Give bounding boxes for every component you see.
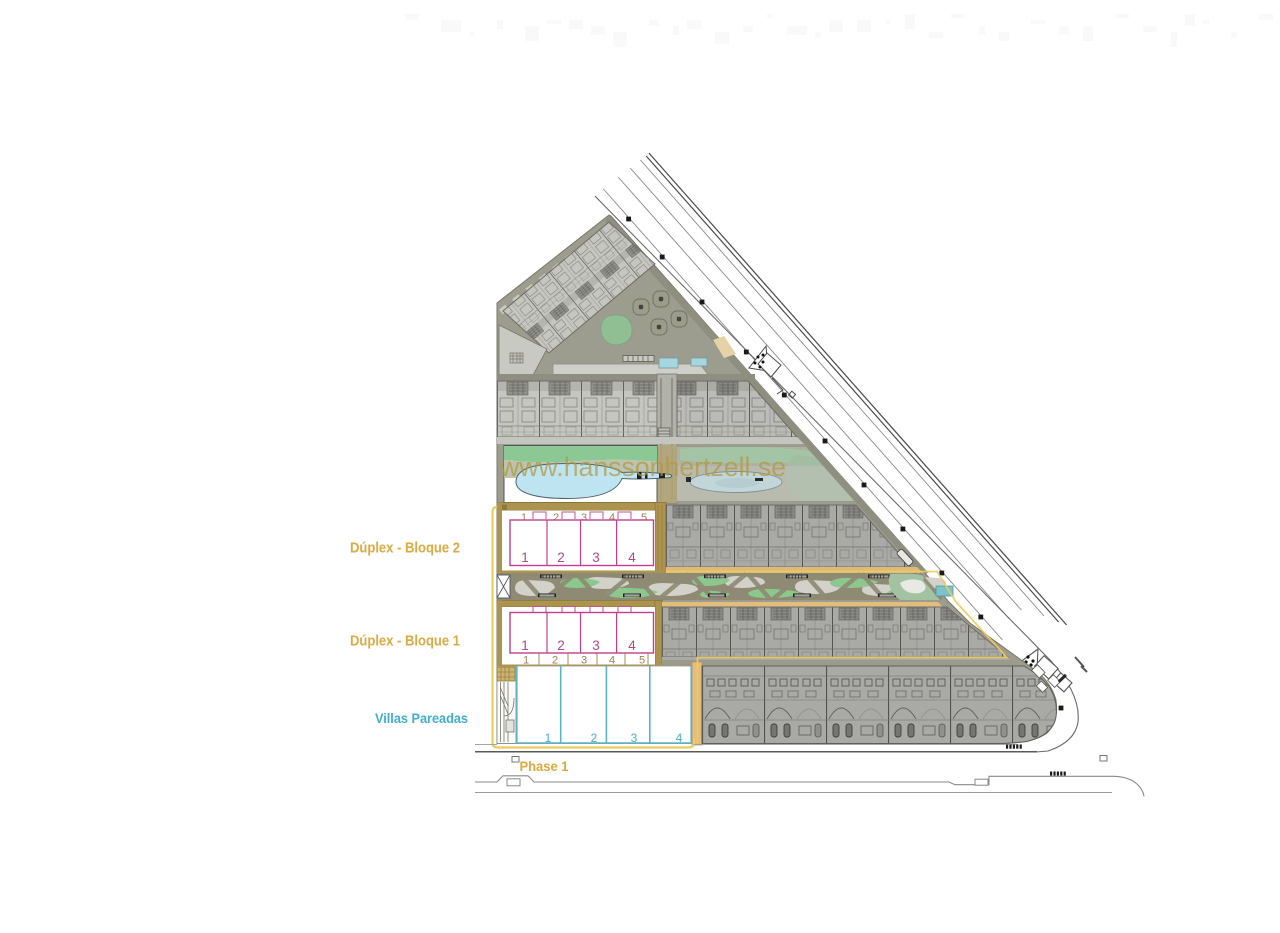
svg-text:1: 1: [545, 731, 552, 745]
svg-text:4: 4: [628, 550, 636, 565]
svg-text:3: 3: [592, 638, 600, 653]
svg-text:www.hanssonhertzell.se: www.hanssonhertzell.se: [499, 452, 786, 482]
svg-text:Dúplex - Bloque 1: Dúplex - Bloque 1: [350, 632, 460, 649]
svg-text:4: 4: [628, 638, 636, 653]
svg-text:2: 2: [557, 638, 565, 653]
svg-text:4: 4: [676, 731, 683, 745]
svg-text:1: 1: [521, 550, 529, 565]
svg-text:2: 2: [557, 550, 565, 565]
svg-text:1: 1: [521, 638, 529, 653]
svg-text:2: 2: [591, 731, 598, 745]
svg-text:3: 3: [631, 731, 638, 745]
svg-text:Dúplex - Bloque 2: Dúplex - Bloque 2: [350, 540, 460, 557]
svg-text:3: 3: [592, 550, 600, 565]
svg-text:Villas Pareadas: Villas Pareadas: [375, 710, 468, 726]
svg-text:Phase 1: Phase 1: [520, 758, 569, 774]
